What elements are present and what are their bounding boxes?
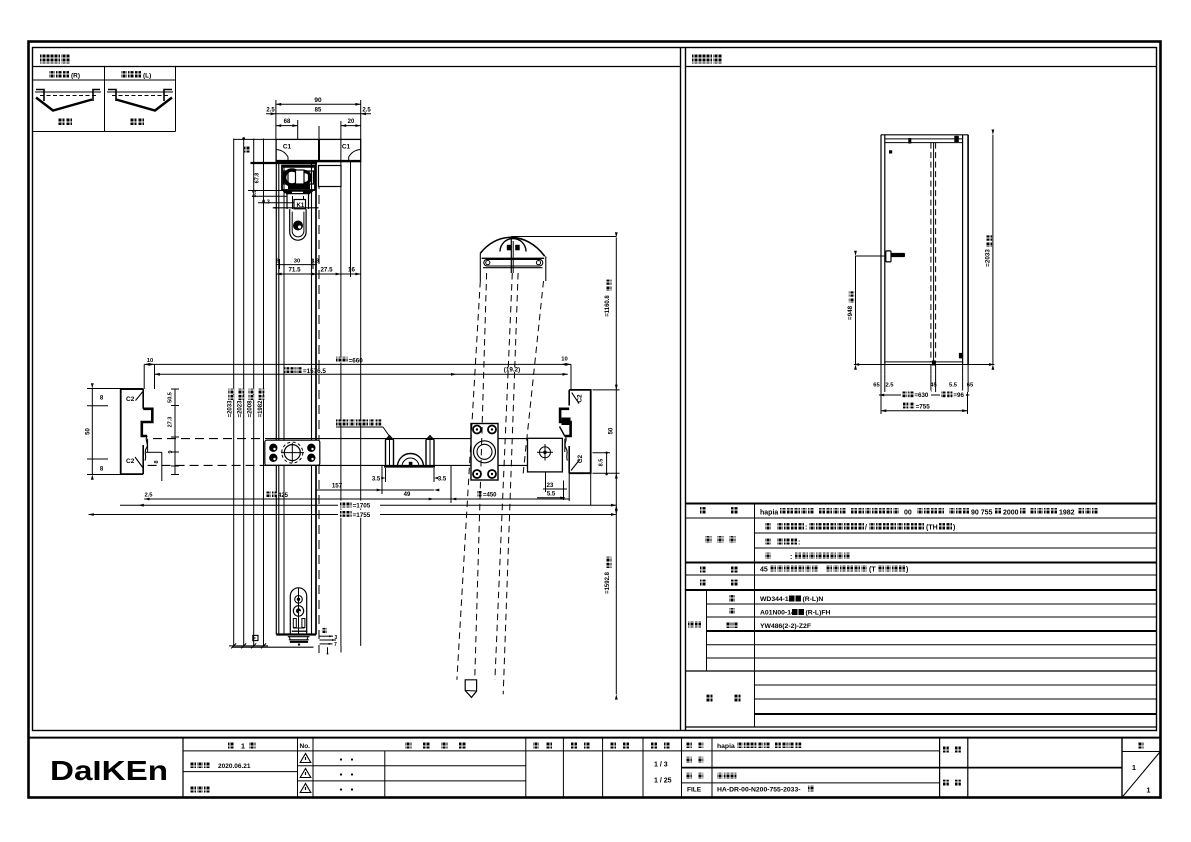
svg-text:(R): (R) <box>71 73 80 80</box>
svg-text:FILE: FILE <box>687 787 702 794</box>
svg-text:No.: No. <box>300 743 311 750</box>
svg-text:157: 157 <box>332 483 343 490</box>
svg-text:3.5: 3.5 <box>438 477 447 483</box>
svg-text:(T: (T <box>869 567 876 574</box>
svg-text:1: 1 <box>1146 786 1150 795</box>
svg-text:=1160.8: =1160.8 <box>605 295 611 317</box>
svg-text:71.5: 71.5 <box>288 267 301 274</box>
svg-text:): ) <box>953 525 955 532</box>
svg-text:5.5: 5.5 <box>547 492 556 498</box>
svg-text:=755: =755 <box>916 403 931 410</box>
svg-text:425: 425 <box>278 493 289 499</box>
svg-text:50.5: 50.5 <box>168 392 174 403</box>
svg-text:/: / <box>865 525 867 532</box>
svg-text::: : <box>798 540 800 547</box>
svg-text:DaIKEn: DaIKEn <box>50 755 168 786</box>
svg-text:=1982: =1982 <box>258 400 264 418</box>
svg-text:(19.2): (19.2) <box>504 367 520 374</box>
svg-text:68: 68 <box>284 119 291 125</box>
svg-text:hapia: hapia <box>717 743 735 750</box>
svg-text:50: 50 <box>86 428 92 435</box>
svg-text:HA-DR-00-N200-755-2033-: HA-DR-00-N200-755-2033- <box>717 787 800 794</box>
svg-text:8: 8 <box>154 460 160 463</box>
svg-text:90: 90 <box>314 97 322 104</box>
svg-text:A01N00-14: A01N00-14 <box>760 610 795 617</box>
svg-text:=1705: =1705 <box>353 503 371 510</box>
svg-text:8.5: 8.5 <box>599 459 605 467</box>
svg-text:2000: 2000 <box>1003 510 1019 517</box>
svg-text:C1: C1 <box>342 144 351 151</box>
svg-text:3.3: 3.3 <box>311 258 320 264</box>
svg-text:45: 45 <box>760 567 768 574</box>
svg-text:1 / 3: 1 / 3 <box>654 762 668 769</box>
svg-text:=1576.5: =1576.5 <box>303 368 326 375</box>
svg-text:C2: C2 <box>126 396 135 403</box>
svg-text:=2008: =2008 <box>248 400 254 418</box>
svg-text:2.5: 2.5 <box>144 493 153 499</box>
svg-text:10: 10 <box>561 357 567 363</box>
svg-text:=96: =96 <box>953 392 964 399</box>
svg-text:65: 65 <box>873 382 880 388</box>
svg-text:9: 9 <box>168 450 174 453</box>
svg-text:2.5: 2.5 <box>885 382 894 388</box>
svg-text:1982: 1982 <box>1059 510 1075 517</box>
svg-text:=2033: =2033 <box>228 400 234 418</box>
svg-text:=948: =948 <box>847 305 854 320</box>
svg-text:67.8: 67.8 <box>255 173 261 184</box>
svg-text:(R-L)FH: (R-L)FH <box>806 610 831 617</box>
svg-text:=1592.8: =1592.8 <box>605 571 611 594</box>
svg-text:=1755: =1755 <box>353 512 371 519</box>
svg-text:2.5: 2.5 <box>362 108 371 114</box>
svg-text:1: 1 <box>241 742 245 751</box>
svg-text:YW486(2-2)-Z2F: YW486(2-2)-Z2F <box>760 623 811 630</box>
svg-text:(R-L)N: (R-L)N <box>803 596 824 603</box>
svg-text:50: 50 <box>609 427 615 434</box>
svg-text:00: 00 <box>904 510 912 517</box>
svg-text:1: 1 <box>1132 763 1136 772</box>
svg-text:3.5: 3.5 <box>372 477 381 483</box>
svg-text:=2023: =2023 <box>238 400 244 418</box>
svg-text:10: 10 <box>147 358 153 364</box>
svg-text:): ) <box>906 567 908 574</box>
svg-text:C2: C2 <box>126 458 135 465</box>
svg-text:(TH: (TH <box>926 525 938 532</box>
svg-text:49: 49 <box>404 492 411 498</box>
svg-text:=660: =660 <box>349 358 364 365</box>
svg-text::: : <box>790 554 792 561</box>
svg-text:85: 85 <box>315 108 322 114</box>
svg-text:5.9: 5.9 <box>252 190 258 198</box>
svg-text:5.5: 5.5 <box>949 382 958 388</box>
svg-text:23: 23 <box>547 483 554 489</box>
svg-text:27.3: 27.3 <box>168 417 174 428</box>
svg-text:2.5: 2.5 <box>266 108 275 114</box>
svg-text:30: 30 <box>294 258 300 264</box>
svg-text:90 755: 90 755 <box>971 510 993 517</box>
svg-text::: : <box>805 525 807 532</box>
svg-text:7: 7 <box>334 642 337 648</box>
svg-text:20: 20 <box>348 119 355 125</box>
svg-text:=630: =630 <box>914 392 928 399</box>
svg-text:WD344-14: WD344-14 <box>760 596 793 603</box>
svg-text:2020.06.21: 2020.06.21 <box>218 763 251 770</box>
svg-text:27.5: 27.5 <box>320 267 333 274</box>
svg-text:hapia: hapia <box>760 510 778 517</box>
svg-text:=2033: =2033 <box>985 249 992 267</box>
svg-text:1 / 25: 1 / 25 <box>654 778 672 785</box>
svg-text:3: 3 <box>335 635 338 641</box>
svg-text:=450: =450 <box>483 493 497 499</box>
svg-text:(L): (L) <box>143 73 151 80</box>
svg-text:C1: C1 <box>283 144 292 151</box>
svg-text:16: 16 <box>348 267 355 274</box>
